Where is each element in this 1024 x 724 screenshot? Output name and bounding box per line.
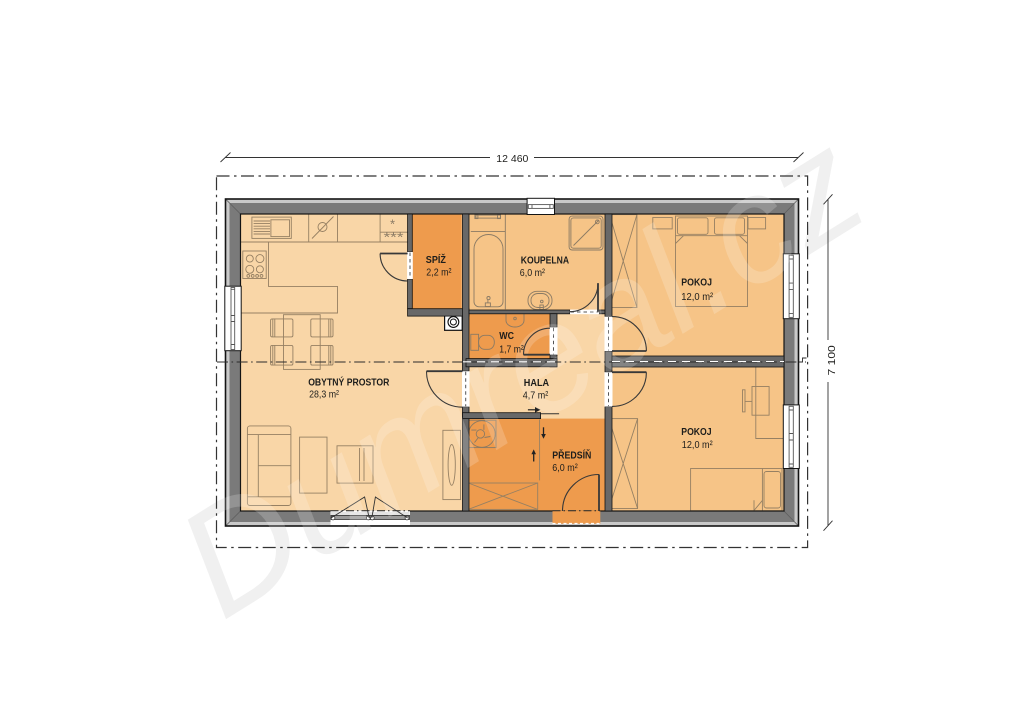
svg-text:4,7 m²: 4,7 m²: [523, 389, 549, 401]
svg-text:7 100: 7 100: [826, 345, 838, 375]
svg-text:HALA: HALA: [524, 377, 550, 389]
svg-text:12,0 m²: 12,0 m²: [682, 439, 713, 451]
svg-text:12,0 m²: 12,0 m²: [681, 291, 713, 303]
svg-text:6,0 m²: 6,0 m²: [520, 267, 546, 279]
svg-text:PŘEDSÍŇ: PŘEDSÍŇ: [552, 449, 591, 462]
svg-text:6,0 m²: 6,0 m²: [552, 462, 578, 474]
svg-text:KOUPELNA: KOUPELNA: [521, 255, 570, 267]
svg-text:POKOJ: POKOJ: [681, 277, 712, 289]
svg-text:***: ***: [384, 230, 404, 245]
svg-text:SPÍŽ: SPÍŽ: [426, 253, 447, 266]
svg-text:POKOJ: POKOJ: [681, 426, 711, 438]
svg-text:1,7 m²: 1,7 m²: [499, 344, 524, 356]
svg-text:12 460: 12 460: [496, 153, 528, 165]
svg-text:OBYTNÝ PROSTOR: OBYTNÝ PROSTOR: [308, 376, 390, 389]
svg-text:WC: WC: [499, 330, 514, 342]
svg-text:28,3 m²: 28,3 m²: [309, 388, 339, 400]
svg-text:2,2 m²: 2,2 m²: [426, 267, 452, 279]
